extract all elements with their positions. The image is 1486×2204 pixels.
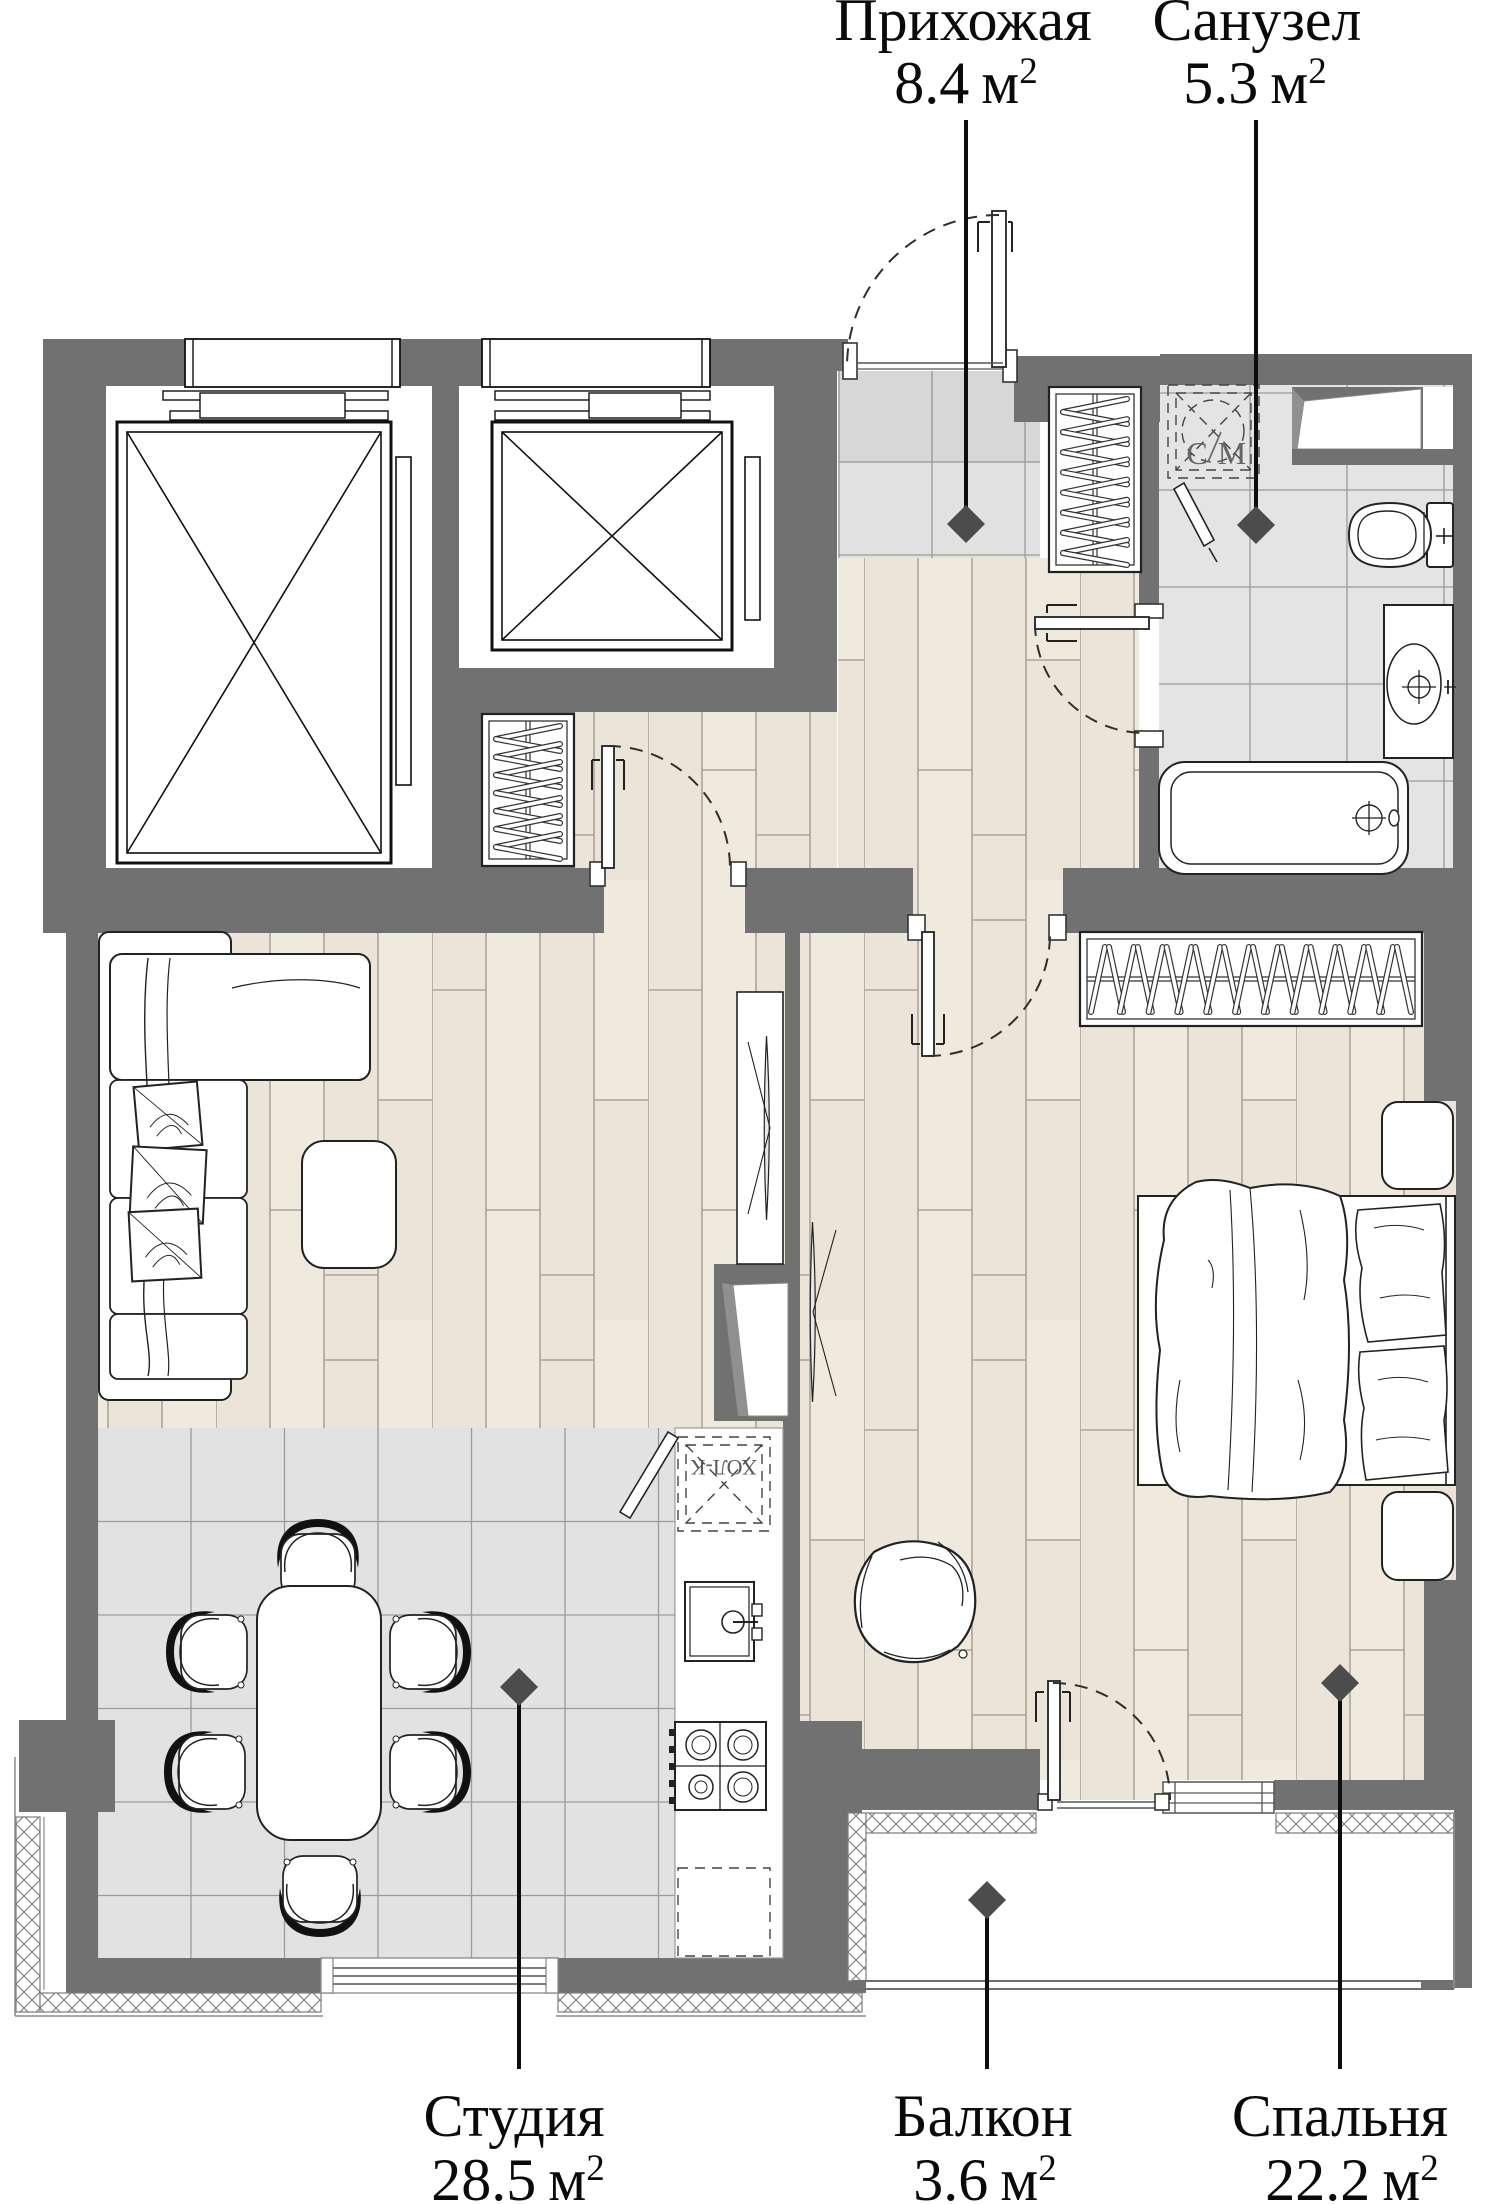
svg-text:С: С (1186, 435, 1207, 471)
svg-text:Студия: Студия (423, 2083, 604, 2149)
svg-text:Балкон: Балкон (893, 2083, 1073, 2149)
svg-text:22.2 м2: 22.2 м2 (1265, 2147, 1438, 2204)
svg-text:ХОЛ-К: ХОЛ-К (690, 1455, 757, 1480)
svg-text:28.5 м2: 28.5 м2 (431, 2147, 604, 2204)
svg-text:3.6 м2: 3.6 м2 (913, 2147, 1056, 2204)
svg-text:Спальня: Спальня (1232, 2083, 1448, 2149)
svg-text:8.4 м2: 8.4 м2 (894, 50, 1037, 116)
svg-text:Прихожая: Прихожая (834, 0, 1091, 53)
svg-text:5.3 м2: 5.3 м2 (1183, 50, 1326, 116)
svg-text:Санузел: Санузел (1152, 0, 1361, 53)
svg-text:М: М (1218, 435, 1246, 471)
